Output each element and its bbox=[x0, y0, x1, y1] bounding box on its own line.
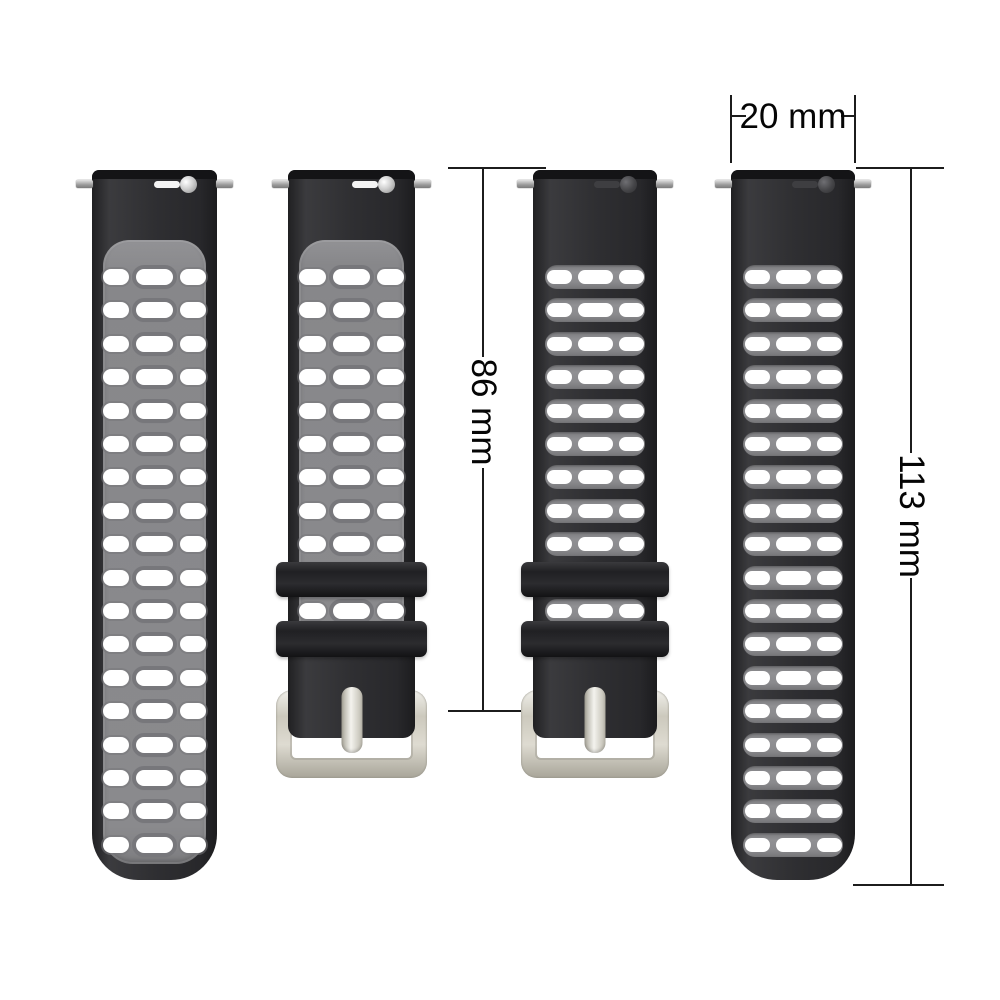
strap-hole-large bbox=[776, 370, 811, 384]
strap-hole-small bbox=[547, 604, 572, 618]
strap-hole-large bbox=[136, 737, 173, 753]
strap-hole-large bbox=[776, 537, 811, 551]
strap-hole-large bbox=[776, 470, 811, 484]
strap-hole-small bbox=[103, 737, 129, 753]
hole-groove bbox=[545, 432, 645, 456]
black-band-holes-side bbox=[731, 170, 855, 880]
strap-hole-small bbox=[547, 437, 572, 451]
hole-groove bbox=[545, 332, 645, 356]
hole-row bbox=[544, 599, 646, 623]
strap-hole-small bbox=[817, 470, 842, 484]
hole-row bbox=[742, 699, 844, 723]
hole-groove bbox=[743, 833, 843, 857]
strap-hole-small bbox=[299, 469, 326, 485]
keeper-loop-upper bbox=[276, 562, 427, 597]
hole-groove bbox=[743, 432, 843, 456]
hole-row bbox=[742, 599, 844, 623]
hole-row bbox=[742, 499, 844, 523]
strap-hole-small bbox=[377, 469, 404, 485]
perforated-panel bbox=[103, 240, 206, 864]
strap-hole-small bbox=[103, 536, 129, 552]
strap-hole-small bbox=[103, 369, 129, 385]
strap-hole-small bbox=[180, 269, 206, 285]
strap-hole-small bbox=[299, 403, 326, 419]
strap-hole-large bbox=[578, 504, 613, 518]
strap-hole-large bbox=[776, 771, 811, 785]
strap-hole-small bbox=[745, 370, 770, 384]
keeper-loop-upper bbox=[521, 562, 669, 597]
strap-hole-small bbox=[547, 337, 572, 351]
hole-row bbox=[299, 403, 404, 419]
hole-row bbox=[299, 436, 404, 452]
hole-row bbox=[742, 532, 844, 556]
hole-row bbox=[742, 365, 844, 389]
dim-86mm-line-lower bbox=[482, 468, 484, 711]
strap-hole-small bbox=[103, 803, 129, 819]
spring-bar-pin-left bbox=[517, 180, 534, 188]
strap-hole-large bbox=[136, 436, 173, 452]
strap-hole-small bbox=[103, 770, 129, 786]
strap-hole-small bbox=[817, 303, 842, 317]
gray-band-holes-side bbox=[92, 170, 217, 880]
strap-hole-small bbox=[619, 470, 644, 484]
strap-hole-small bbox=[745, 637, 770, 651]
strap-hole-large bbox=[776, 303, 811, 317]
hole-row bbox=[299, 603, 404, 619]
hole-row bbox=[742, 332, 844, 356]
strap-hole-large bbox=[136, 469, 173, 485]
strap-hole-small bbox=[745, 303, 770, 317]
strap-hole-small bbox=[180, 436, 206, 452]
hole-row bbox=[103, 302, 206, 318]
strap-hole-large bbox=[333, 269, 371, 285]
hole-row bbox=[544, 399, 646, 423]
strap-hole-small bbox=[745, 437, 770, 451]
hole-groove bbox=[545, 499, 645, 523]
strap-hole-small bbox=[180, 302, 206, 318]
strap-hole-large bbox=[776, 437, 811, 451]
strap-hole-small bbox=[377, 536, 404, 552]
lug-end-cap bbox=[533, 170, 657, 179]
band-width-label: 20 mm bbox=[731, 97, 855, 137]
strap-hole-small bbox=[745, 771, 770, 785]
dim-113mm-line-upper bbox=[910, 167, 912, 453]
strap-hole-large bbox=[776, 604, 811, 618]
strap-hole-large bbox=[776, 637, 811, 651]
hole-row bbox=[299, 469, 404, 485]
strap-hole-large bbox=[578, 537, 613, 551]
strap-hole-large bbox=[136, 803, 173, 819]
strap-hole-small bbox=[619, 504, 644, 518]
quick-release-slider-knob bbox=[180, 176, 197, 193]
strap-hole-large bbox=[578, 437, 613, 451]
quick-release-slider-knob bbox=[818, 176, 835, 193]
black-band-buckle-side bbox=[533, 170, 657, 778]
strap-hole-large bbox=[333, 436, 371, 452]
hole-row bbox=[742, 733, 844, 757]
hole-groove bbox=[545, 465, 645, 489]
hole-row bbox=[103, 636, 206, 652]
strap-hole-small bbox=[103, 570, 129, 586]
lug-end-cap bbox=[731, 170, 855, 179]
strap-hole-small bbox=[817, 437, 842, 451]
hole-groove bbox=[743, 733, 843, 757]
hole-row bbox=[742, 799, 844, 823]
strap-hole-small bbox=[180, 570, 206, 586]
strap-hole-small bbox=[817, 838, 842, 852]
hole-row bbox=[103, 503, 206, 519]
strap-hole-large bbox=[136, 336, 173, 352]
strap-hole-small bbox=[377, 603, 404, 619]
hole-row bbox=[103, 737, 206, 753]
hole-row bbox=[299, 302, 404, 318]
strap-hole-small bbox=[299, 603, 326, 619]
strap-hole-small bbox=[745, 537, 770, 551]
quick-release-slider-knob bbox=[378, 176, 395, 193]
strap-hole-small bbox=[817, 270, 842, 284]
strap-hole-large bbox=[333, 302, 371, 318]
strap-hole-large bbox=[578, 470, 613, 484]
hole-row bbox=[544, 432, 646, 456]
strap-hole-small bbox=[180, 670, 206, 686]
keeper-loop-lower bbox=[521, 621, 669, 657]
strap-hole-large bbox=[333, 536, 371, 552]
hole-groove bbox=[743, 599, 843, 623]
keeper-loop-lower bbox=[276, 621, 427, 657]
hole-row bbox=[103, 536, 206, 552]
lug-end-cap bbox=[288, 170, 415, 179]
buckle-side-length-label: 86 mm bbox=[463, 347, 503, 477]
strap-hole-large bbox=[136, 703, 173, 719]
hole-groove bbox=[545, 298, 645, 322]
strap-hole-small bbox=[180, 503, 206, 519]
strap-hole-small bbox=[180, 703, 206, 719]
strap-hole-large bbox=[333, 469, 371, 485]
strap-hole-small bbox=[817, 370, 842, 384]
strap-hole-small bbox=[547, 404, 572, 418]
strap-hole-small bbox=[745, 738, 770, 752]
strap-hole-large bbox=[136, 636, 173, 652]
strap-hole-small bbox=[299, 536, 326, 552]
strap-hole-small bbox=[103, 636, 129, 652]
hole-groove bbox=[743, 465, 843, 489]
strap-hole-small bbox=[180, 737, 206, 753]
strap-hole-small bbox=[817, 804, 842, 818]
strap-hole-small bbox=[180, 803, 206, 819]
spring-bar-pin-right bbox=[656, 180, 673, 188]
strap-hole-large bbox=[776, 838, 811, 852]
hole-row bbox=[103, 469, 206, 485]
hole-row bbox=[299, 536, 404, 552]
spring-bar-pin-right bbox=[414, 180, 431, 188]
strap-hole-small bbox=[547, 537, 572, 551]
strap-hole-small bbox=[745, 504, 770, 518]
spring-bar-pin-left bbox=[76, 180, 93, 188]
strap-hole-small bbox=[817, 337, 842, 351]
strap-hole-large bbox=[136, 603, 173, 619]
hole-row bbox=[544, 465, 646, 489]
hole-row bbox=[544, 298, 646, 322]
hole-row bbox=[103, 369, 206, 385]
hole-row bbox=[742, 566, 844, 590]
hole-row bbox=[299, 269, 404, 285]
strap-hole-large bbox=[578, 337, 613, 351]
hole-row bbox=[299, 336, 404, 352]
hole-groove bbox=[743, 566, 843, 590]
strap-hole-large bbox=[578, 370, 613, 384]
dim-86mm-tick-top bbox=[448, 167, 546, 169]
hole-groove bbox=[743, 365, 843, 389]
strap-hole-small bbox=[547, 504, 572, 518]
strap-hole-small bbox=[103, 469, 129, 485]
quick-release-slider-bar bbox=[792, 181, 818, 188]
hole-row bbox=[103, 837, 206, 853]
strap-hole-small bbox=[817, 738, 842, 752]
strap-hole-small bbox=[180, 837, 206, 853]
strap-hole-large bbox=[136, 670, 173, 686]
strap-hole-small bbox=[817, 637, 842, 651]
strap-hole-small bbox=[103, 302, 129, 318]
strap-hole-small bbox=[619, 337, 644, 351]
strap-hole-small bbox=[180, 369, 206, 385]
strap-hole-small bbox=[619, 604, 644, 618]
hole-row bbox=[544, 532, 646, 556]
lug-end-cap bbox=[92, 170, 217, 179]
strap-hole-small bbox=[619, 370, 644, 384]
strap-hole-small bbox=[180, 603, 206, 619]
strap-hole-small bbox=[299, 302, 326, 318]
hole-row bbox=[103, 603, 206, 619]
hole-row bbox=[103, 670, 206, 686]
hole-row bbox=[103, 570, 206, 586]
strap-hole-small bbox=[547, 270, 572, 284]
strap-hole-small bbox=[377, 503, 404, 519]
strap-hole-small bbox=[299, 269, 326, 285]
strap-hole-small bbox=[299, 436, 326, 452]
strap-hole-large bbox=[776, 404, 811, 418]
strap-body bbox=[731, 170, 855, 880]
spring-bar-pin-right bbox=[854, 180, 871, 188]
strap-hole-small bbox=[547, 370, 572, 384]
hole-groove bbox=[743, 699, 843, 723]
hole-row bbox=[103, 269, 206, 285]
strap-hole-small bbox=[103, 837, 129, 853]
hole-groove bbox=[743, 799, 843, 823]
hole-groove bbox=[545, 599, 645, 623]
hole-groove bbox=[743, 399, 843, 423]
hole-groove bbox=[545, 532, 645, 556]
spring-bar-pin-left bbox=[272, 180, 289, 188]
hole-row bbox=[742, 766, 844, 790]
hole-groove bbox=[545, 265, 645, 289]
spring-bar-pin-right bbox=[216, 180, 233, 188]
strap-hole-small bbox=[817, 671, 842, 685]
strap-hole-large bbox=[333, 369, 371, 385]
strap-hole-small bbox=[817, 504, 842, 518]
strap-hole-small bbox=[817, 604, 842, 618]
strap-hole-small bbox=[745, 470, 770, 484]
strap-hole-large bbox=[136, 570, 173, 586]
buckle-prong bbox=[585, 687, 606, 753]
hole-row bbox=[103, 403, 206, 419]
strap-hole-small bbox=[745, 604, 770, 618]
strap-body bbox=[92, 170, 217, 880]
strap-hole-small bbox=[103, 269, 129, 285]
strap-hole-small bbox=[547, 470, 572, 484]
strap-hole-large bbox=[136, 536, 173, 552]
strap-hole-small bbox=[619, 404, 644, 418]
strap-hole-small bbox=[180, 536, 206, 552]
strap-hole-small bbox=[103, 670, 129, 686]
hole-row bbox=[742, 833, 844, 857]
hole-groove bbox=[743, 666, 843, 690]
hole-row bbox=[544, 499, 646, 523]
strap-hole-small bbox=[299, 369, 326, 385]
strap-hole-small bbox=[619, 437, 644, 451]
strap-hole-small bbox=[299, 336, 326, 352]
strap-hole-small bbox=[103, 703, 129, 719]
strap-hole-large bbox=[776, 804, 811, 818]
hole-row bbox=[742, 666, 844, 690]
strap-hole-small bbox=[180, 336, 206, 352]
hole-groove bbox=[743, 332, 843, 356]
strap-hole-small bbox=[619, 270, 644, 284]
strap-hole-large bbox=[776, 337, 811, 351]
dim-86mm-line-upper bbox=[482, 167, 484, 357]
strap-hole-small bbox=[103, 603, 129, 619]
strap-hole-large bbox=[578, 604, 613, 618]
quick-release-slider-knob bbox=[620, 176, 637, 193]
quick-release-slider-bar bbox=[594, 181, 620, 188]
strap-hole-small bbox=[180, 636, 206, 652]
strap-hole-small bbox=[817, 404, 842, 418]
hole-row bbox=[103, 803, 206, 819]
strap-hole-large bbox=[776, 504, 811, 518]
hole-row bbox=[742, 265, 844, 289]
strap-hole-small bbox=[745, 337, 770, 351]
strap-hole-large bbox=[136, 770, 173, 786]
strap-hole-small bbox=[745, 404, 770, 418]
strap-hole-large bbox=[136, 369, 173, 385]
hole-row bbox=[103, 436, 206, 452]
hole-row bbox=[742, 399, 844, 423]
strap-hole-small bbox=[745, 804, 770, 818]
strap-hole-small bbox=[180, 770, 206, 786]
hole-row bbox=[103, 703, 206, 719]
dim-113mm-tick-top bbox=[856, 167, 944, 169]
dim-113mm-tick-bottom bbox=[853, 884, 944, 886]
hole-row bbox=[299, 503, 404, 519]
strap-hole-small bbox=[817, 771, 842, 785]
spring-bar-pin-left bbox=[715, 180, 732, 188]
strap-hole-large bbox=[776, 704, 811, 718]
hole-groove bbox=[743, 766, 843, 790]
strap-hole-large bbox=[136, 302, 173, 318]
strap-hole-small bbox=[299, 503, 326, 519]
strap-hole-large bbox=[333, 336, 371, 352]
strap-hole-small bbox=[745, 270, 770, 284]
strap-hole-small bbox=[745, 704, 770, 718]
perforated-panel bbox=[742, 240, 844, 864]
strap-hole-large bbox=[776, 738, 811, 752]
quick-release-slider-bar bbox=[154, 181, 180, 188]
strap-hole-small bbox=[745, 571, 770, 585]
strap-hole-small bbox=[103, 403, 129, 419]
strap-hole-small bbox=[103, 503, 129, 519]
hole-row bbox=[544, 332, 646, 356]
hole-groove bbox=[743, 298, 843, 322]
strap-hole-small bbox=[817, 704, 842, 718]
hole-row bbox=[299, 369, 404, 385]
buckle-prong bbox=[341, 687, 362, 753]
hole-groove bbox=[545, 365, 645, 389]
strap-hole-small bbox=[745, 838, 770, 852]
strap-hole-large bbox=[578, 303, 613, 317]
strap-hole-small bbox=[103, 436, 129, 452]
quick-release-slider-bar bbox=[352, 181, 378, 188]
strap-hole-large bbox=[776, 571, 811, 585]
hole-row bbox=[544, 365, 646, 389]
strap-hole-large bbox=[136, 837, 173, 853]
strap-hole-small bbox=[619, 303, 644, 317]
strap-hole-large bbox=[578, 404, 613, 418]
strap-hole-large bbox=[776, 270, 811, 284]
hole-groove bbox=[743, 632, 843, 656]
hole-row bbox=[742, 432, 844, 456]
strap-hole-small bbox=[817, 537, 842, 551]
strap-hole-small bbox=[745, 671, 770, 685]
strap-hole-small bbox=[377, 336, 404, 352]
strap-hole-small bbox=[377, 269, 404, 285]
strap-hole-small bbox=[180, 403, 206, 419]
strap-hole-small bbox=[377, 436, 404, 452]
strap-hole-large bbox=[136, 269, 173, 285]
gray-band-buckle-side bbox=[288, 170, 415, 778]
strap-hole-small bbox=[180, 469, 206, 485]
hole-row bbox=[103, 770, 206, 786]
strap-hole-small bbox=[619, 537, 644, 551]
strap-hole-large bbox=[136, 503, 173, 519]
hole-row bbox=[742, 465, 844, 489]
strap-hole-large bbox=[578, 270, 613, 284]
holes-side-length-label: 113 mm bbox=[891, 441, 931, 591]
strap-hole-small bbox=[103, 336, 129, 352]
hole-row bbox=[544, 265, 646, 289]
hole-row bbox=[742, 298, 844, 322]
hole-row bbox=[103, 336, 206, 352]
strap-hole-small bbox=[377, 302, 404, 318]
strap-hole-large bbox=[776, 671, 811, 685]
strap-hole-large bbox=[333, 503, 371, 519]
hole-groove bbox=[743, 499, 843, 523]
dim-113mm-line-lower bbox=[910, 578, 912, 886]
hole-groove bbox=[743, 532, 843, 556]
hole-groove bbox=[545, 399, 645, 423]
strap-hole-large bbox=[333, 603, 371, 619]
strap-hole-large bbox=[136, 403, 173, 419]
strap-hole-small bbox=[377, 369, 404, 385]
strap-hole-small bbox=[377, 403, 404, 419]
strap-hole-small bbox=[547, 303, 572, 317]
strap-hole-small bbox=[817, 571, 842, 585]
hole-row bbox=[742, 632, 844, 656]
strap-hole-large bbox=[333, 403, 371, 419]
hole-groove bbox=[743, 265, 843, 289]
